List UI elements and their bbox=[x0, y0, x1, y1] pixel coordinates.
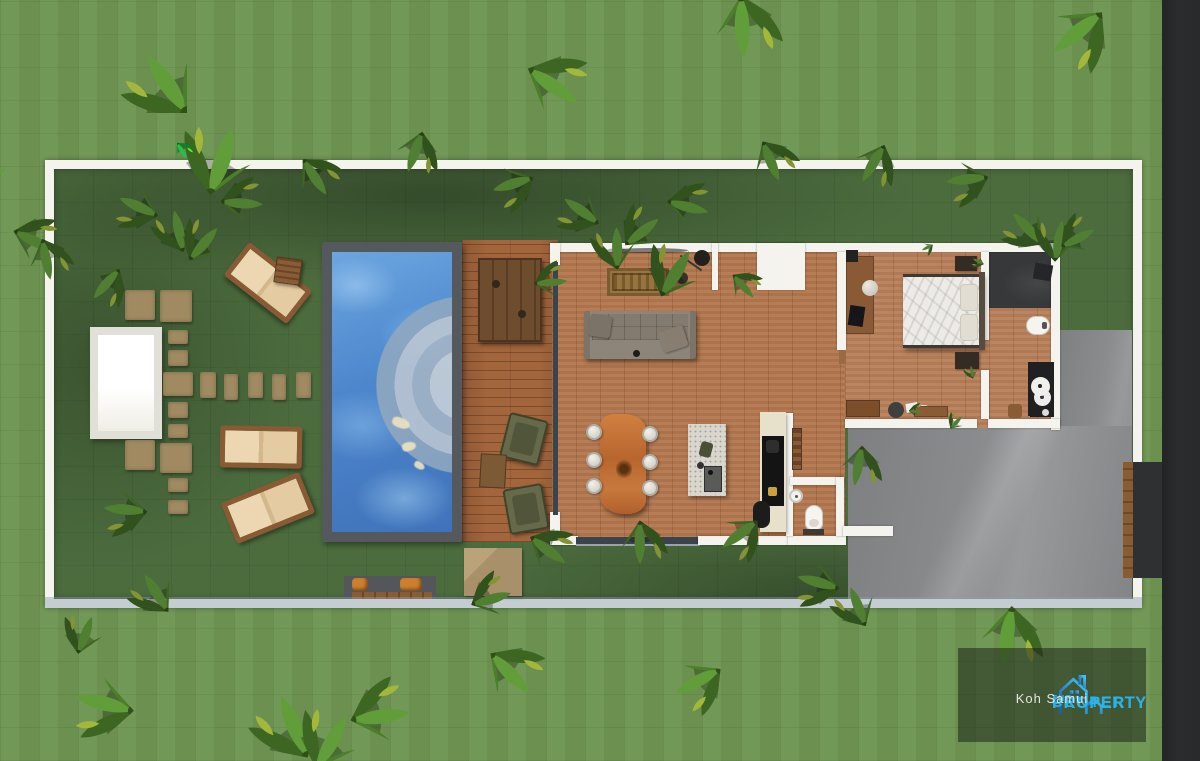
bath-towel bbox=[1033, 263, 1054, 282]
swimming-pool bbox=[322, 242, 462, 542]
dining-chair bbox=[642, 426, 658, 442]
watermark: THE PROPERTY CENTER Koh Samui bbox=[958, 648, 1146, 742]
stepping-stone bbox=[163, 372, 193, 396]
dining-chair bbox=[586, 424, 602, 440]
faucet bbox=[708, 470, 713, 475]
dining-chair bbox=[586, 452, 602, 468]
gate-opening bbox=[1132, 462, 1162, 578]
sliding-glass-door-south bbox=[576, 537, 700, 544]
entry-partition bbox=[712, 243, 718, 290]
stepping-stone bbox=[168, 402, 188, 418]
stepping-stone bbox=[160, 443, 192, 473]
wall-living-bedroom bbox=[837, 252, 846, 350]
street bbox=[1162, 0, 1200, 761]
bench-cushion bbox=[400, 578, 422, 591]
dining-chair bbox=[642, 454, 658, 470]
powder-room-sink bbox=[789, 489, 803, 503]
area-rug bbox=[607, 268, 669, 296]
wall-bedroom-south bbox=[988, 419, 1060, 428]
boundary-wall-south bbox=[45, 597, 1142, 608]
office-chair bbox=[888, 402, 904, 418]
wooden-chair bbox=[1008, 404, 1022, 418]
deck-dining-table bbox=[478, 258, 542, 342]
outdoor-daybed-platform bbox=[90, 327, 162, 439]
door-threshold bbox=[839, 350, 846, 364]
wall-bedroom-south bbox=[845, 419, 977, 428]
sofa-pillow bbox=[588, 314, 613, 339]
hall-ladder-shelf bbox=[792, 428, 802, 470]
powder-room-toilet bbox=[805, 505, 823, 530]
stepping-stone bbox=[168, 500, 188, 514]
stepping-stone bbox=[168, 424, 188, 438]
wall-south-segment bbox=[552, 536, 578, 545]
nightstand bbox=[955, 352, 979, 369]
sun-lounger bbox=[220, 425, 303, 468]
deck-armchair bbox=[502, 483, 549, 535]
wall-tv bbox=[846, 250, 858, 262]
kettle bbox=[768, 487, 777, 496]
stepping-stone bbox=[248, 372, 263, 398]
deck-side-table bbox=[479, 453, 507, 488]
wall-bedroom-bath bbox=[981, 370, 989, 419]
stepping-stone bbox=[272, 374, 286, 400]
stepping-stone bbox=[125, 290, 155, 320]
lamp-shade bbox=[694, 250, 710, 266]
shade-mat bbox=[464, 548, 522, 596]
desk-chair bbox=[862, 280, 878, 296]
toilet-mat bbox=[803, 529, 824, 535]
stepping-stone bbox=[296, 372, 311, 398]
wall-stub-southwest bbox=[843, 526, 893, 536]
stepping-stone bbox=[224, 374, 238, 400]
south-desk bbox=[914, 406, 948, 417]
bathroom-toilet bbox=[1026, 316, 1050, 335]
stepping-stone bbox=[168, 330, 188, 344]
stepping-stone bbox=[200, 372, 216, 398]
logo-location: Koh Samui bbox=[1016, 691, 1089, 706]
glass-wall-west bbox=[553, 262, 558, 515]
stepping-stone bbox=[125, 440, 155, 470]
washer-knob bbox=[1042, 409, 1049, 416]
pool-water bbox=[332, 252, 452, 532]
garden-side-table bbox=[273, 256, 302, 285]
wall-south-segment bbox=[698, 536, 788, 545]
ceiling-beam-shadow bbox=[612, 248, 688, 253]
nightstand bbox=[955, 256, 977, 271]
sofa-detail bbox=[633, 350, 640, 357]
bed-pillow bbox=[960, 314, 978, 341]
wooden-gate bbox=[1123, 462, 1133, 578]
bed-pillow bbox=[960, 284, 978, 311]
kitchen-stool bbox=[753, 501, 770, 528]
wall-south-segment bbox=[788, 536, 846, 545]
south-cabinet bbox=[846, 400, 880, 417]
laptop bbox=[848, 305, 866, 327]
door-track bbox=[576, 544, 700, 546]
dining-chair bbox=[586, 478, 602, 494]
entry-vestibule bbox=[757, 243, 805, 290]
bed-headboard bbox=[979, 272, 985, 350]
bench-cushion bbox=[352, 578, 368, 591]
dining-table bbox=[600, 414, 646, 514]
villa-floor-plan-render: THE PROPERTY CENTER Koh Samui bbox=[0, 0, 1200, 761]
kitchen-sink bbox=[766, 440, 779, 453]
stepping-stone bbox=[168, 478, 188, 492]
bathroom-sink bbox=[1031, 377, 1050, 396]
dining-chair bbox=[642, 480, 658, 496]
island-item bbox=[697, 462, 704, 469]
stepping-stone bbox=[168, 350, 188, 366]
lamp-base bbox=[676, 272, 688, 284]
island-sink bbox=[704, 466, 722, 492]
driveway bbox=[848, 426, 1132, 599]
stepping-stone bbox=[160, 290, 192, 322]
